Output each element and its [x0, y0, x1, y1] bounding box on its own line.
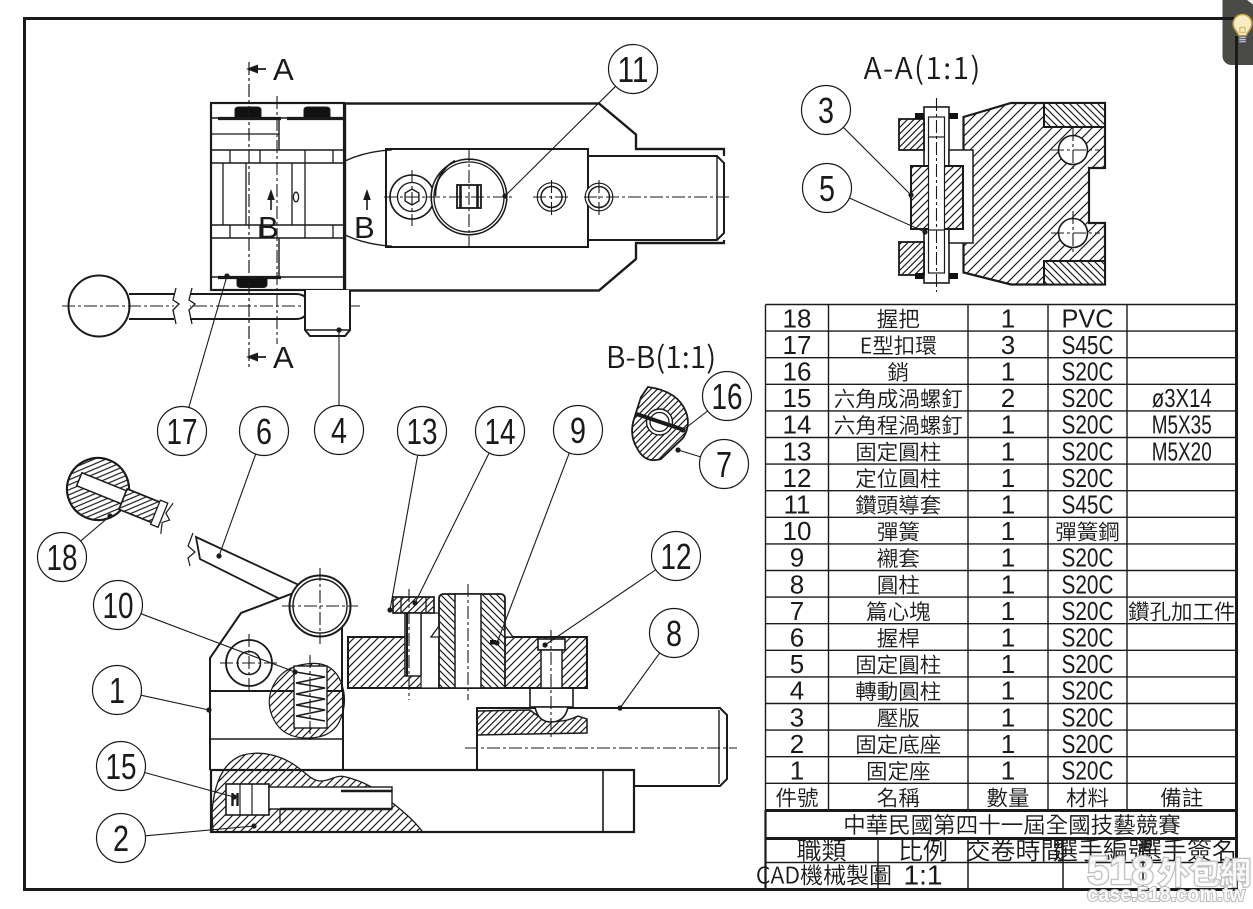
- svg-text:1: 1: [109, 670, 125, 711]
- svg-text:1: 1: [1001, 516, 1015, 546]
- svg-text:6: 6: [256, 411, 272, 452]
- svg-text:B: B: [258, 210, 279, 245]
- svg-text:S20C: S20C: [1062, 756, 1114, 786]
- svg-text:S45C: S45C: [1062, 330, 1114, 360]
- svg-text:A: A: [273, 340, 294, 375]
- svg-text:S20C: S20C: [1062, 702, 1114, 732]
- svg-text:12: 12: [661, 536, 692, 577]
- svg-text:2: 2: [790, 729, 804, 759]
- svg-text:1: 1: [1001, 490, 1015, 520]
- svg-text:ø3X14: ø3X14: [1152, 383, 1212, 413]
- svg-text:1: 1: [1001, 729, 1015, 759]
- svg-text:1: 1: [1001, 410, 1015, 440]
- svg-text:16: 16: [783, 357, 812, 387]
- svg-text:10: 10: [103, 585, 134, 626]
- svg-text:S20C: S20C: [1062, 463, 1114, 493]
- svg-text:11: 11: [784, 490, 811, 520]
- svg-text:18: 18: [783, 303, 812, 333]
- svg-text:1:1: 1:1: [904, 860, 943, 891]
- svg-text:S20C: S20C: [1062, 596, 1114, 626]
- svg-text:3: 3: [1001, 330, 1015, 360]
- svg-text:12: 12: [783, 463, 812, 493]
- svg-text:13: 13: [407, 411, 438, 452]
- svg-text:1: 1: [1001, 569, 1015, 599]
- svg-text:17: 17: [783, 330, 812, 360]
- svg-text:1: 1: [1001, 303, 1015, 333]
- svg-text:3: 3: [818, 90, 834, 131]
- svg-text:S20C: S20C: [1062, 383, 1114, 413]
- svg-text:13: 13: [783, 436, 812, 466]
- svg-text:1: 1: [1001, 596, 1015, 626]
- svg-text:16: 16: [712, 376, 743, 417]
- svg-text:3: 3: [790, 702, 804, 732]
- svg-text:8: 8: [790, 569, 804, 599]
- svg-text:S20C: S20C: [1062, 649, 1114, 679]
- svg-text:7: 7: [716, 444, 732, 485]
- svg-text:1: 1: [1001, 756, 1015, 786]
- svg-text:18: 18: [47, 537, 78, 578]
- svg-text:15: 15: [783, 383, 812, 413]
- svg-text:S20C: S20C: [1062, 676, 1114, 706]
- svg-text:10: 10: [783, 516, 812, 546]
- svg-text:17: 17: [167, 411, 198, 452]
- svg-text:M5X35: M5X35: [1152, 410, 1212, 440]
- svg-text:5: 5: [790, 649, 804, 679]
- svg-text:1: 1: [1001, 702, 1015, 732]
- svg-text:1: 1: [1001, 649, 1015, 679]
- svg-text:9: 9: [570, 410, 586, 451]
- svg-text:case.518.com.tw: case.518.com.tw: [1087, 884, 1245, 906]
- svg-text:7: 7: [790, 596, 804, 626]
- svg-text:4: 4: [331, 410, 347, 451]
- svg-text:PVC: PVC: [1062, 303, 1114, 333]
- svg-text:S20C: S20C: [1062, 569, 1114, 599]
- svg-text:S20C: S20C: [1062, 410, 1114, 440]
- svg-text:15: 15: [106, 746, 137, 787]
- svg-text:1: 1: [1001, 623, 1015, 653]
- svg-text:B: B: [354, 210, 375, 245]
- svg-text:1: 1: [1001, 436, 1015, 466]
- svg-text:2: 2: [1001, 383, 1015, 413]
- svg-text:A: A: [273, 52, 294, 87]
- svg-text:9: 9: [790, 543, 804, 573]
- svg-text:14: 14: [485, 411, 516, 452]
- svg-text:1: 1: [1001, 676, 1015, 706]
- svg-text:5: 5: [819, 168, 835, 209]
- svg-text:6: 6: [790, 623, 804, 653]
- svg-text:S20C: S20C: [1062, 357, 1114, 387]
- svg-text:S20C: S20C: [1062, 729, 1114, 759]
- svg-text:1: 1: [1001, 357, 1015, 387]
- svg-text:S45C: S45C: [1062, 490, 1114, 520]
- svg-text:1: 1: [1001, 463, 1015, 493]
- svg-text:1: 1: [790, 756, 804, 786]
- svg-text:8: 8: [666, 613, 682, 654]
- svg-text:S20C: S20C: [1062, 436, 1114, 466]
- svg-text:11: 11: [618, 49, 649, 90]
- svg-text:14: 14: [783, 410, 812, 440]
- svg-text:2: 2: [113, 818, 129, 859]
- svg-text:M5X20: M5X20: [1152, 436, 1212, 466]
- svg-text:S20C: S20C: [1062, 543, 1114, 573]
- svg-text:1: 1: [1001, 543, 1015, 573]
- svg-text:S20C: S20C: [1062, 623, 1114, 653]
- svg-text:4: 4: [790, 676, 804, 706]
